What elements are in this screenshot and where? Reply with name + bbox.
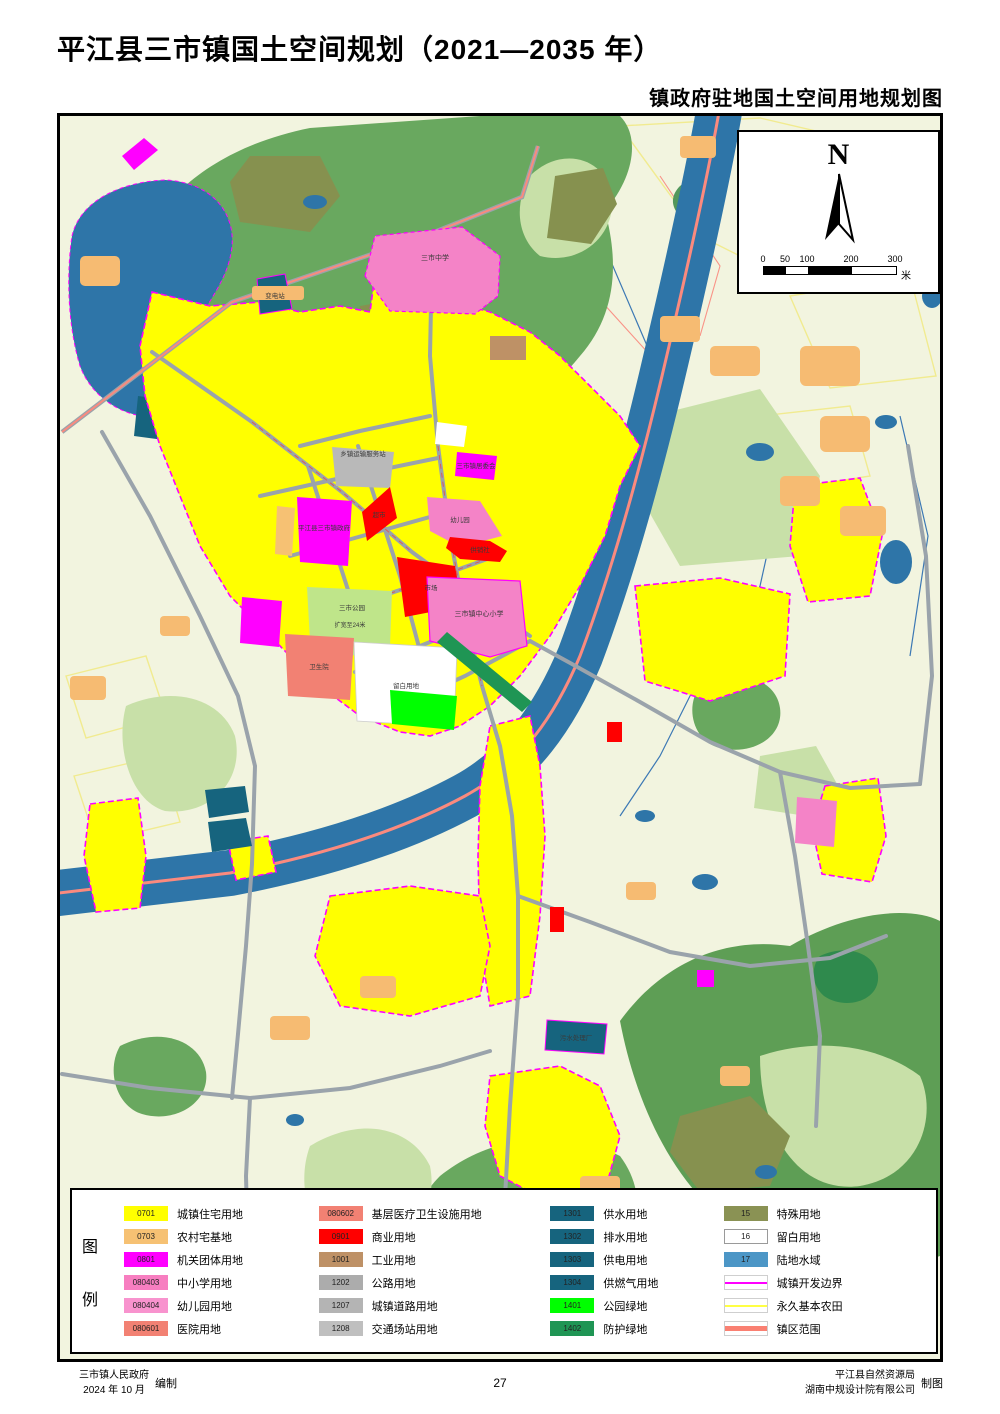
map-label: 污水处理厂: [560, 1033, 593, 1042]
scale-tick: 300: [887, 254, 902, 264]
scale-segment: [852, 267, 896, 274]
legend-item: 1207城镇道路用地: [319, 1294, 551, 1317]
parcel-white-small: [435, 422, 467, 447]
legend-item: 080601医院用地: [124, 1317, 319, 1340]
legend-label: 留白用地: [777, 1229, 821, 1245]
legend-label: 公园绿地: [603, 1298, 647, 1314]
map-label: 变电站: [265, 291, 285, 300]
legend-swatch: 1301: [550, 1206, 594, 1221]
scale-tick: 200: [843, 254, 858, 264]
legend-swatch: 080602: [319, 1206, 363, 1221]
parcel-commercial-e: [607, 722, 622, 742]
north-label: N: [739, 138, 938, 172]
parcel-school-se: [795, 797, 837, 847]
legend-label: 镇区范围: [777, 1321, 821, 1337]
legend-label: 特殊用地: [777, 1206, 821, 1222]
legend-label: 供水用地: [603, 1206, 647, 1222]
map-label: 幼儿园: [450, 515, 470, 524]
legend-label: 医院用地: [177, 1321, 221, 1337]
legend-item: 1302排水用地: [550, 1225, 723, 1248]
legend-swatch: 080403: [124, 1275, 168, 1290]
legend-swatch: 1402: [550, 1321, 594, 1336]
legend-label: 幼儿园用地: [177, 1298, 232, 1314]
legend-label: 机关团体用地: [177, 1252, 243, 1268]
legend-swatch: 1202: [319, 1275, 363, 1290]
legend-swatch: 0901: [319, 1229, 363, 1244]
legend-item: 1402防护绿地: [550, 1317, 723, 1340]
legend-item: 1304供燃气用地: [550, 1271, 723, 1294]
map-label: 卫生院: [309, 662, 329, 671]
scale-segment: [786, 267, 808, 274]
map-label: 供销社: [470, 545, 490, 554]
legend-label: 城镇住宅用地: [177, 1206, 243, 1222]
legend-column: 080602基层医疗卫生设施用地0901商业用地1001工业用地1202公路用地…: [319, 1202, 551, 1344]
legend-item: 城镇开发边界: [724, 1271, 928, 1294]
legend-column: 1301供水用地1302排水用地1303供电用地1304供燃气用地1401公园绿…: [550, 1202, 723, 1344]
map-label: 平江县三市镇政府: [298, 523, 351, 532]
legend-item: 15特殊用地: [724, 1202, 928, 1225]
legend-label: 陆地水域: [777, 1252, 821, 1268]
map-label: 超市: [373, 510, 387, 519]
legend-label: 永久基本农田: [777, 1298, 843, 1314]
forest-left-bottom: [114, 1037, 207, 1117]
legend-columns: 0701城镇住宅用地0703农村宅基地0801机关团体用地080403中小学用地…: [124, 1202, 928, 1344]
footer: 三市镇人民政府 2024 年 10 月 编制 27 平江县自然资源局 湖南中规设…: [57, 1368, 943, 1408]
legend-label: 排水用地: [603, 1229, 647, 1245]
legend-column: 0701城镇住宅用地0703农村宅基地0801机关团体用地080403中小学用地…: [124, 1202, 319, 1344]
legend-item: 1202公路用地: [319, 1271, 551, 1294]
legend-swatch: 080404: [124, 1298, 168, 1313]
legend-item: 1401公园绿地: [550, 1294, 723, 1317]
legend-label: 交通场站用地: [372, 1321, 438, 1337]
legend-label: 防护绿地: [603, 1321, 647, 1337]
legend-label: 农村宅基地: [177, 1229, 232, 1245]
legend-item: 1301供水用地: [550, 1202, 723, 1225]
footer-right-role: 制图: [921, 1375, 943, 1391]
legend-swatch: 0703: [124, 1229, 168, 1244]
map-label: 乡镇运输服务站: [340, 449, 386, 458]
legend-item: 080403中小学用地: [124, 1271, 319, 1294]
parcel-park-green: [390, 690, 457, 730]
legend-swatch: 16: [724, 1229, 768, 1244]
scale-segments: [763, 266, 897, 275]
legend-label: 商业用地: [372, 1229, 416, 1245]
legend-swatch: 1207: [319, 1298, 363, 1313]
legend-label: 供电用地: [603, 1252, 647, 1268]
parcel-industry: [490, 336, 526, 360]
footer-right-org1: 平江县自然资源局: [835, 1368, 915, 1383]
scale-tick: 50: [780, 254, 790, 264]
parcel-gov-west: [240, 597, 282, 647]
legend-label: 公路用地: [372, 1275, 416, 1291]
map-subtitle: 镇政府驻地国土空间用地规划图: [649, 82, 943, 111]
parcel-gov-se: [697, 970, 714, 987]
parcel-middle-school: [365, 227, 500, 314]
map-label: 市场: [425, 583, 439, 592]
legend-swatch: 15: [724, 1206, 768, 1221]
map-label: 留白用地: [393, 681, 420, 690]
legend-caption-char: 例: [82, 1286, 98, 1310]
legend-label: 工业用地: [372, 1252, 416, 1268]
legend-line-symbol: [724, 1275, 768, 1290]
legend-label: 中小学用地: [177, 1275, 232, 1291]
north-arrow-icon: [817, 170, 861, 248]
legend-item: 1303供电用地: [550, 1248, 723, 1271]
legend-caption-char: 图: [82, 1233, 98, 1257]
legend-label: 城镇开发边界: [777, 1275, 843, 1291]
legend-swatch: 080601: [124, 1321, 168, 1336]
scale-segment: [764, 267, 786, 274]
legend-label: 城镇道路用地: [372, 1298, 438, 1314]
legend-item: 1208交通场站用地: [319, 1317, 551, 1340]
planning-map: 三市中学变电站乡镇运输服务站三市镇居委会超市平江县三市镇政府幼儿园供销社市场三市…: [60, 116, 940, 1359]
footer-right-org2: 湖南中规设计院有限公司: [805, 1383, 915, 1398]
legend-item: 0901商业用地: [319, 1225, 551, 1248]
scale-tick: 100: [799, 254, 814, 264]
legend-swatch: 17: [724, 1252, 768, 1267]
legend-caption: 图 例: [82, 1190, 98, 1352]
legend-label: 基层医疗卫生设施用地: [372, 1206, 482, 1222]
page-title: 平江县三市镇国土空间规划（2021—2035 年）: [57, 28, 662, 68]
legend-swatch: 1304: [550, 1275, 594, 1290]
legend-item: 16留白用地: [724, 1225, 928, 1248]
legend-item: 1001工业用地: [319, 1248, 551, 1271]
legend-item: 17陆地水域: [724, 1248, 928, 1271]
scale-bar: 050100200300 米: [763, 254, 923, 288]
map-label: 三市公园: [339, 603, 365, 612]
scale-ticks: 050100200300: [763, 254, 923, 266]
scale-unit: 米: [901, 267, 911, 282]
legend: 图 例 0701城镇住宅用地0703农村宅基地0801机关团体用地080403中…: [70, 1188, 938, 1354]
map-label: 三市镇中心小学: [455, 609, 504, 618]
map-label: 扩宽至24米: [335, 621, 366, 629]
parcel-commercial-s: [550, 907, 564, 932]
legend-item: 080602基层医疗卫生设施用地: [319, 1202, 551, 1225]
scale-tick: 0: [760, 254, 765, 264]
map-frame: 三市中学变电站乡镇运输服务站三市镇居委会超市平江县三市镇政府幼儿园供销社市场三市…: [57, 113, 943, 1362]
legend-swatch: 0801: [124, 1252, 168, 1267]
legend-item: 永久基本农田: [724, 1294, 928, 1317]
legend-line-symbol: [724, 1321, 768, 1336]
legend-swatch: 1001: [319, 1252, 363, 1267]
legend-swatch: 1303: [550, 1252, 594, 1267]
legend-column: 15特殊用地16留白用地17陆地水域城镇开发边界永久基本农田镇区范围: [724, 1202, 928, 1344]
map-label: 三市中学: [421, 253, 449, 262]
legend-swatch: 1401: [550, 1298, 594, 1313]
legend-item: 0801机关团体用地: [124, 1248, 319, 1271]
parcel-utility-2: [208, 818, 252, 852]
legend-swatch: 1302: [550, 1229, 594, 1244]
legend-line-symbol: [724, 1298, 768, 1313]
scale-segment: [808, 267, 852, 274]
parcel-homestead-strip: [275, 506, 295, 556]
map-label: 三市镇居委会: [457, 461, 497, 470]
page: 平江县三市镇国土空间规划（2021—2035 年） 镇政府驻地国土空间用地规划图: [0, 0, 1000, 1414]
legend-item: 0703农村宅基地: [124, 1225, 319, 1248]
footer-right: 平江县自然资源局 湖南中规设计院有限公司 制图: [805, 1368, 943, 1398]
legend-item: 镇区范围: [724, 1317, 928, 1340]
legend-item: 0701城镇住宅用地: [124, 1202, 319, 1225]
legend-item: 080404幼儿园用地: [124, 1294, 319, 1317]
legend-label: 供燃气用地: [603, 1275, 658, 1291]
north-scale-box: N 050100200300 米: [737, 130, 940, 294]
legend-swatch: 1208: [319, 1321, 363, 1336]
legend-swatch: 0701: [124, 1206, 168, 1221]
